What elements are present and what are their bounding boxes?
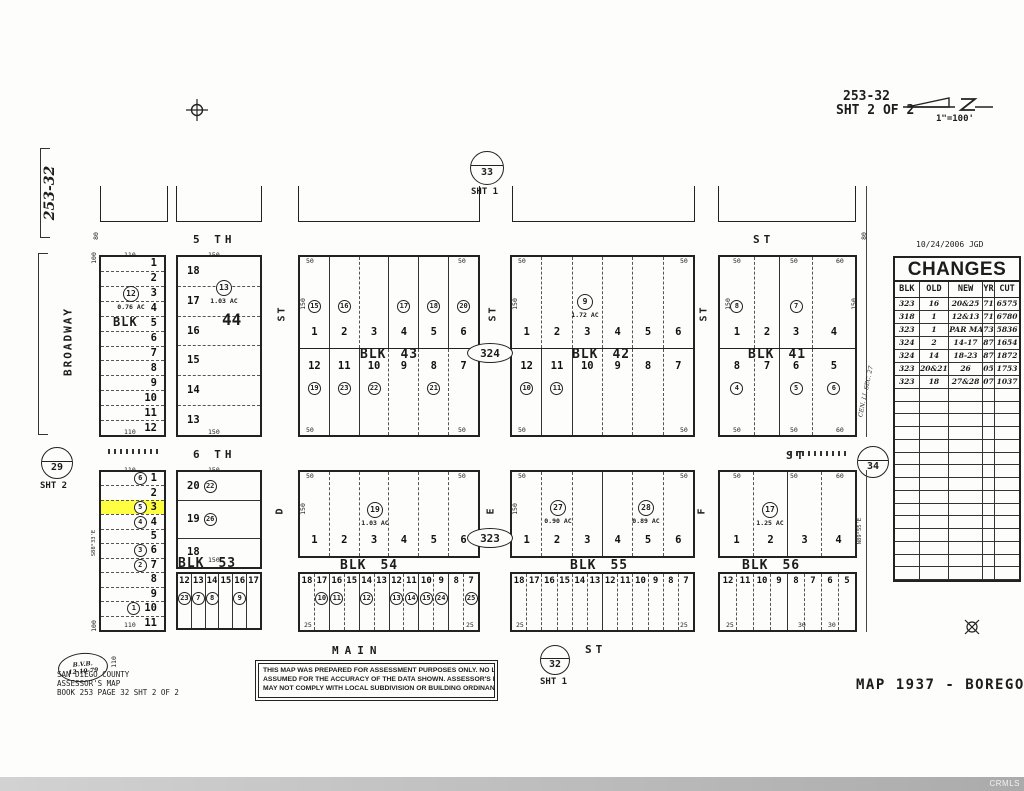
block-43: 1511623174185206 12191123102298217 [298, 255, 480, 437]
dimension-label: 50 [733, 472, 741, 480]
changes-cell [895, 478, 919, 490]
changes-blank-row [895, 491, 1019, 504]
changes-cell [994, 491, 1019, 503]
lot-number: 9 [151, 589, 157, 600]
parcel-ref-circle: 22 [204, 480, 217, 493]
watermark-label: CRMLS [989, 779, 1020, 788]
lot-number: 16 [331, 576, 342, 587]
lot-12: 1213 [389, 574, 404, 630]
lot-number: 9 [439, 576, 444, 587]
circle-number: 34 [858, 461, 888, 472]
circle-number: 32 [541, 659, 569, 670]
lot-2: 2 [101, 485, 164, 499]
lot-11: 1114 [403, 574, 418, 630]
changes-cell: 324 [895, 350, 919, 362]
blk-number: 42 [612, 348, 630, 361]
changes-cell [948, 567, 981, 579]
lot-number: 15 [187, 355, 200, 366]
lot-number: 11 [144, 408, 157, 419]
lot-number: 3 [151, 502, 157, 513]
lot-number: 8 [151, 574, 157, 585]
lot-number: 4 [401, 327, 407, 338]
lot-number: 11 [740, 576, 751, 587]
parcel-ref-circle: 17 [762, 502, 778, 518]
lot-7: 7 [663, 349, 693, 435]
block-44-label: 44 [222, 310, 241, 329]
parcel-ref-circle: 8 [730, 300, 743, 313]
dimension-label: 30 [828, 621, 836, 629]
changes-cell: 1654 [994, 337, 1019, 349]
block-stub [100, 186, 168, 222]
lot-10: 10 [101, 390, 164, 405]
dimension-label: 50 [790, 257, 798, 265]
changes-cell [895, 542, 919, 554]
sheet-index-circle-33: 33 [470, 151, 504, 185]
sixth-street-label: 6 TH [193, 448, 236, 461]
changes-cell: 14-17 [948, 337, 981, 349]
lot-number: 9 [401, 361, 407, 372]
parcel-ref-circle: 13 [390, 592, 403, 605]
changes-cell [919, 402, 949, 414]
changes-cell [948, 542, 981, 554]
lot-number: 14 [207, 576, 218, 587]
parcel-ref-circle: 9 [577, 294, 593, 310]
changes-blank-row [895, 542, 1019, 555]
changes-cell [919, 414, 949, 426]
lot-number: 4 [835, 535, 841, 546]
section-boundary-line [866, 470, 867, 632]
changes-cell [919, 555, 949, 567]
changes-cell: 1 [919, 324, 949, 336]
dimension-label: 100 [90, 620, 98, 632]
lot-number: 6 [151, 333, 157, 344]
dimension-label: 50 [518, 472, 526, 480]
lot-2: 2 [754, 257, 780, 348]
changes-cell: 05 [982, 363, 994, 375]
parcel-ref-circle: 12 [360, 592, 373, 605]
hatch-mark [108, 449, 162, 454]
lot-2: 2 [101, 271, 164, 286]
changes-cell [895, 453, 919, 465]
parcel-ref-circle: 15 [308, 300, 321, 313]
changes-cell [948, 427, 981, 439]
lot-9: 9 [648, 574, 663, 630]
dimension-label: 50 [680, 257, 688, 265]
changes-cell [948, 478, 981, 490]
lot-number: 5 [151, 318, 157, 329]
blk-word: BLK [742, 559, 768, 572]
parcel-ref-circle: 27 [550, 500, 566, 516]
changes-cell [982, 427, 994, 439]
changes-cell [948, 402, 981, 414]
lot-1: 61 [101, 472, 164, 485]
changes-blank-row [895, 414, 1019, 427]
lot-14: 1412 [359, 574, 374, 630]
block-54-strip: 1817101611151412131213111410159248725 [298, 572, 480, 632]
changes-blank-row [895, 529, 1019, 542]
lot-15: 15 [344, 574, 359, 630]
lot-20: 2022 [178, 472, 260, 500]
lot-14: 14 [178, 375, 260, 405]
lot-11: 11 [617, 574, 632, 630]
block-53-right-top: 2022192618 [176, 470, 262, 569]
fifth-street-st: ST [753, 233, 774, 246]
changes-blank-row [895, 389, 1019, 402]
changes-cell: 14 [919, 350, 949, 362]
changes-cell: 323 [895, 376, 919, 388]
lot-17: 1710 [314, 574, 329, 630]
lot-number: 13 [187, 415, 200, 426]
block-56-strip: 12111098765 [718, 572, 857, 632]
lot-number: 8 [793, 576, 798, 587]
block-55-label: BLK55 [570, 559, 628, 572]
sheet-index-sub-32: SHT 1 [540, 677, 567, 687]
changes-cell [948, 440, 981, 452]
parcel-ref-circle: 23 [178, 592, 191, 605]
changes-cell [919, 453, 949, 465]
lot-number: 20 [187, 481, 200, 492]
changes-cell [895, 504, 919, 516]
changes-cell [982, 440, 994, 452]
acreage-note: 191.03 AC [352, 502, 398, 527]
lot-number: 2 [554, 327, 560, 338]
acreage-label: 1.72 AC [571, 311, 598, 319]
lot-number: 12 [144, 423, 157, 434]
circle-number: 29 [42, 462, 72, 473]
lot-5: 5 [101, 529, 164, 543]
blk-word: BLK [360, 348, 386, 361]
lot-5: 56 [812, 349, 855, 435]
changes-cell [919, 440, 949, 452]
changes-blank-row [895, 427, 1019, 440]
lot-15: 15 [218, 574, 232, 628]
changes-cell: 2 [919, 337, 949, 349]
changes-cell [919, 542, 949, 554]
lot-16: 16 [178, 316, 260, 346]
changes-cell [994, 453, 1019, 465]
blk-number: 41 [788, 348, 806, 361]
block-43-bottom-row: 12191123102298217 [300, 349, 478, 435]
lot-number: 3 [371, 327, 377, 338]
lot-15: 15 [557, 574, 572, 630]
north-arrow-icon [903, 94, 993, 114]
lot-number: 5 [645, 535, 651, 546]
dimension-label: 150 [208, 466, 220, 474]
changes-cell [919, 491, 949, 503]
dimension-label: 60 [836, 472, 844, 480]
lot-number: 10 [635, 576, 646, 587]
e-street-label: E [486, 506, 497, 514]
parcel-ref-circle: 11 [550, 382, 563, 395]
lot-number: 1 [151, 258, 157, 269]
block-42-label: BLK42 [572, 348, 630, 361]
lot-number: 2 [767, 535, 773, 546]
lot-9: 9 [101, 587, 164, 601]
changes-cell [948, 389, 981, 401]
parcel-ref-circle: 9 [233, 592, 246, 605]
lot-number: 6 [675, 535, 681, 546]
parcel-ref-circle: 6 [134, 472, 147, 485]
block-56-label: BLK56 [742, 559, 800, 572]
changes-cell [982, 389, 994, 401]
sheet-index-circle-32: 32 [540, 645, 570, 675]
changes-row: 3241418-23871872 [895, 350, 1019, 363]
dimension-label: 150 [299, 298, 307, 310]
dimension-label: 50 [733, 426, 741, 434]
block-41: 812734 8476556 [718, 255, 857, 437]
changes-cell [982, 491, 994, 503]
lot-number: 8 [431, 361, 437, 372]
lot-number: 7 [683, 576, 688, 587]
lot-number: 9 [653, 576, 658, 587]
changes-cell: 6780 [994, 311, 1019, 323]
lot-13: 13 [374, 574, 389, 630]
lot-8: 821 [418, 349, 448, 435]
lot-number: 13 [376, 576, 387, 587]
lot-number: 5 [431, 327, 437, 338]
dimension-label: 150 [511, 298, 519, 310]
parcel-ref-circle: 5 [790, 382, 803, 395]
map-title: MAP 1937 - BOREGO [856, 677, 1024, 693]
lot-number: 5 [645, 327, 651, 338]
lot-number: 10 [144, 393, 157, 404]
dimension-label: 50 [518, 257, 526, 265]
changes-cell [919, 529, 949, 541]
lot-number: 12 [520, 361, 533, 372]
changes-cell [982, 453, 994, 465]
changes-cell [982, 516, 994, 528]
lot-8: 8 [101, 572, 164, 586]
acreage-label: 1.03 AC [361, 519, 388, 527]
lot-number: 4 [151, 517, 157, 528]
lot-number: 2 [764, 327, 770, 338]
parcel-ref-circle: 12 [123, 286, 139, 302]
dimension-label: 80 [92, 232, 100, 240]
parcel-ref-circle: 10 [520, 382, 533, 395]
changes-cell: 6575 [994, 298, 1019, 310]
lot-7: 7 [448, 349, 478, 435]
lot-number: 3 [801, 535, 807, 546]
lot-number: 1 [733, 535, 739, 546]
changes-cell [994, 440, 1019, 452]
lot-6: 6 [663, 257, 693, 348]
parcel-ref-circle: 4 [134, 516, 147, 529]
lot-number: 1 [151, 473, 157, 484]
dimension-label: 25 [516, 621, 524, 629]
changes-cell [948, 465, 981, 477]
lot-number: 4 [614, 535, 620, 546]
disclaimer-line: THIS MAP WAS PREPARED FOR ASSESSMENT PUR… [263, 666, 490, 675]
lot-number: 6 [151, 545, 157, 556]
lot-number: 3 [584, 327, 590, 338]
lot-number: 8 [734, 361, 740, 372]
parcel-ref-circle: 7 [192, 592, 205, 605]
sheet-index-circle-29: 29 [41, 447, 73, 479]
changes-cell: 87 [982, 337, 994, 349]
changes-cell [948, 555, 981, 567]
changes-header-blk: BLK [895, 282, 919, 297]
bearing-label-53: S88°33'E [91, 521, 97, 565]
lot-number: 15 [220, 576, 231, 587]
lot-number: 12 [605, 576, 616, 587]
parcel-group-ellipse-324: 324 [467, 343, 513, 363]
lot-10: 110 [101, 601, 164, 615]
changes-cell [994, 478, 1019, 490]
changes-row: 3231827&28071037 [895, 376, 1019, 389]
scale-label: 1"=100' [936, 114, 974, 124]
lot-4: 44 [101, 514, 164, 528]
changes-cell: 27&28 [948, 376, 981, 388]
lot-number: 12 [391, 576, 402, 587]
acreage-label: 1.25 AC [756, 519, 783, 527]
dimension-label: 110 [110, 656, 118, 668]
changes-row: 324214-17871654 [895, 337, 1019, 350]
changes-header-cut: CUT [994, 282, 1019, 297]
parcel-ref-circle: 24 [435, 592, 448, 605]
changes-cell [982, 402, 994, 414]
lot-number: 1 [524, 535, 530, 546]
lot-number: 12 [308, 361, 321, 372]
blk-number: 53 [218, 557, 236, 570]
lot-5: 5 [632, 257, 662, 348]
changes-cell [948, 491, 981, 503]
changes-cell [982, 465, 994, 477]
block-55-strip: 181716151413121110987 [510, 572, 695, 632]
dimension-label: 50 [306, 426, 314, 434]
changes-cell [919, 427, 949, 439]
disclaimer-line: ASSUMED FOR THE ACCURACY OF THE DATA SHO… [263, 675, 490, 684]
lot-number: 18 [514, 576, 525, 587]
lot-number: 6 [460, 327, 466, 338]
parcel-ref-circle: 5 [134, 501, 147, 514]
lot-5: 5 [838, 574, 855, 630]
lot-number: 2 [341, 535, 347, 546]
lot-15: 15 [178, 345, 260, 375]
changes-blank-row [895, 465, 1019, 478]
dimension-label: 30 [798, 621, 806, 629]
lot-5: 5 [418, 472, 448, 556]
changes-cell [982, 555, 994, 567]
disclaimer-text: THIS MAP WAS PREPARED FOR ASSESSMENT PUR… [258, 663, 495, 698]
lot-number: 10 [421, 576, 432, 587]
acreage-note: 270.90 AC [535, 500, 581, 525]
lot-number: 17 [187, 296, 200, 307]
lot-number: 15 [346, 576, 357, 587]
acreage-note: 120.76 AC [108, 286, 154, 311]
changes-cell [948, 414, 981, 426]
bearing-label-56: N89°55'E [857, 509, 863, 553]
lot-3: 73 [779, 257, 811, 348]
dimension-label: 60 [836, 426, 844, 434]
circle-number: 33 [471, 167, 503, 178]
changes-cell [994, 427, 1019, 439]
main-street-st: ST [585, 643, 606, 656]
changes-body: 3231620&25716575318112&137167803231PAR M… [895, 298, 1019, 580]
fifth-street-label: 5 TH [193, 233, 236, 246]
lot-number: 2 [151, 488, 157, 499]
lot-9: 924 [433, 574, 448, 630]
lot-number: 8 [668, 576, 673, 587]
dimension-label: 50 [790, 426, 798, 434]
block-stub [718, 186, 856, 222]
changes-cell: 71 [982, 298, 994, 310]
lot-6: 6 [101, 331, 164, 346]
lot-12: 12 [602, 574, 617, 630]
block-6: 123456789101112 [99, 255, 166, 437]
changes-cell [994, 555, 1019, 567]
dimension-label: 110 [124, 251, 136, 259]
lot-number: 16 [234, 576, 245, 587]
changes-cell [919, 478, 949, 490]
dimension-label: 150 [208, 251, 220, 259]
lot-10: 10 [753, 574, 770, 630]
changes-row: 3231PAR MAP735836 [895, 324, 1019, 337]
lot-number: 1 [524, 327, 530, 338]
changes-cell [895, 555, 919, 567]
block-stub [298, 186, 480, 222]
changes-cell [982, 504, 994, 516]
block-43-label: BLK43 [360, 348, 418, 361]
lot-13: 13 [587, 574, 602, 630]
lot-number: 7 [810, 576, 815, 587]
block-53-left: 6125344536278911011 [99, 470, 166, 632]
changes-row: 32320&2126051753 [895, 363, 1019, 376]
lot-16: 1611 [329, 574, 344, 630]
lot-11: 1123 [329, 349, 359, 435]
dimension-label: 25 [304, 621, 312, 629]
changes-cell: 20&21 [919, 363, 949, 375]
lot-number: 17 [248, 576, 259, 587]
lot-number: 10 [144, 603, 157, 614]
lot-number: 7 [151, 348, 157, 359]
parcel-ref-circle: 28 [638, 500, 654, 516]
changes-blank-row [895, 504, 1019, 517]
lot-number: 9 [614, 361, 620, 372]
lot-number: 7 [460, 361, 466, 372]
lot-number: 16 [187, 326, 200, 337]
parcel-ref-circle: 2 [134, 559, 147, 572]
dimension-label: 150 [850, 298, 858, 310]
changes-cell: 07 [982, 376, 994, 388]
changes-cell: 18 [919, 376, 949, 388]
lot-number: 7 [151, 560, 157, 571]
changes-cell: 1872 [994, 350, 1019, 362]
acreage-note: 91.72 AC [562, 294, 608, 319]
lot-9: 9 [770, 574, 787, 630]
blk-number: 43 [400, 348, 418, 361]
lot-number: 3 [584, 535, 590, 546]
changes-cell: 73 [982, 324, 994, 336]
lot-number: 17 [529, 576, 540, 587]
parcel-ref-circle: 11 [330, 592, 343, 605]
lot-number: 2 [554, 535, 560, 546]
lot-number: 11 [144, 618, 157, 629]
changes-cell [919, 465, 949, 477]
acreage-label: 0.90 AC [544, 517, 571, 525]
changes-blank-row [895, 478, 1019, 491]
dimension-label: 150 [208, 428, 220, 436]
lot-7: 7 [804, 574, 821, 630]
lot-number: 14 [187, 385, 200, 396]
county-attribution: SAN DIEGO COUNTY ASSESSOR'S MAP BOOK 253… [57, 670, 179, 697]
lot-number: 10 [581, 361, 594, 372]
dimension-label: 150 [299, 503, 307, 515]
scan-bottom-bar [0, 777, 1024, 791]
changes-table: CHANGES BLK OLD NEW YR CUT 3231620&25716… [893, 256, 1021, 582]
disclaimer-line: MAY NOT COMPLY WITH LOCAL SUBDIVISION OR… [263, 684, 490, 693]
changes-cell [919, 504, 949, 516]
lot-11: 1111 [541, 349, 571, 435]
